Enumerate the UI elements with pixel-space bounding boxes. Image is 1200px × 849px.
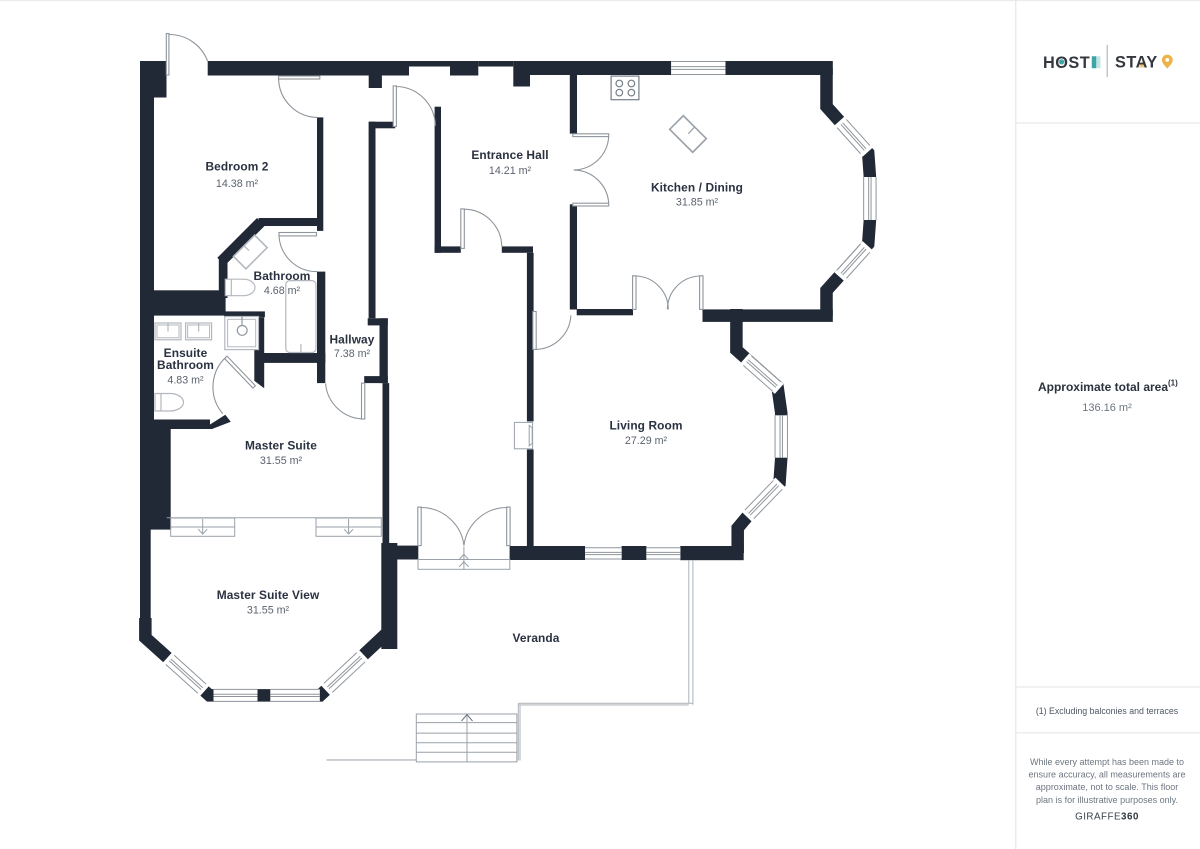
svg-text:14.21 m²: 14.21 m² [489, 165, 532, 177]
svg-text:Bathroom: Bathroom [157, 358, 214, 372]
svg-text:4.83 m²: 4.83 m² [167, 374, 204, 386]
svg-text:Kitchen / Dining: Kitchen / Dining [651, 180, 743, 194]
svg-text:4.68 m²: 4.68 m² [264, 285, 301, 297]
svg-text:(1) Excluding balconies and te: (1) Excluding balconies and terraces [1036, 706, 1179, 716]
svg-text:31.85 m²: 31.85 m² [676, 196, 719, 208]
svg-text:Bathroom: Bathroom [254, 269, 311, 283]
svg-text:While every attempt has been m: While every attempt has been made to [1030, 757, 1184, 767]
svg-text:Approximate total area: Approximate total area [1038, 380, 1168, 394]
svg-text:14.38 m²: 14.38 m² [216, 178, 259, 190]
svg-text:136.16 m²: 136.16 m² [1082, 402, 1132, 414]
svg-text:Master Suite: Master Suite [245, 438, 317, 452]
svg-text:Bedroom 2: Bedroom 2 [205, 159, 268, 173]
svg-text:approximate, not to scale. Thi: approximate, not to scale. This floor [1036, 782, 1178, 792]
svg-text:Veranda: Veranda [513, 631, 560, 645]
svg-text:31.55 m²: 31.55 m² [247, 604, 290, 616]
svg-text:plan is for illustrative purpo: plan is for illustrative purposes only. [1036, 795, 1178, 805]
svg-text:Master Suite View: Master Suite View [217, 588, 320, 602]
svg-text:GIRAFFE360: GIRAFFE360 [1075, 812, 1139, 823]
svg-text:27.29 m²: 27.29 m² [625, 435, 668, 447]
svg-text:STAY: STAY [1115, 54, 1158, 72]
svg-text:ensure accuracy, all measureme: ensure accuracy, all measurements are [1029, 770, 1186, 780]
svg-text:Hallway: Hallway [330, 332, 375, 346]
svg-text:Entrance Hall: Entrance Hall [471, 148, 548, 162]
svg-text:7.38 m²: 7.38 m² [334, 348, 371, 360]
svg-text:Living Room: Living Room [609, 418, 682, 432]
svg-text:(1): (1) [1168, 379, 1178, 388]
svg-text:HOST: HOST [1043, 54, 1090, 72]
svg-text:31.55 m²: 31.55 m² [260, 455, 303, 467]
